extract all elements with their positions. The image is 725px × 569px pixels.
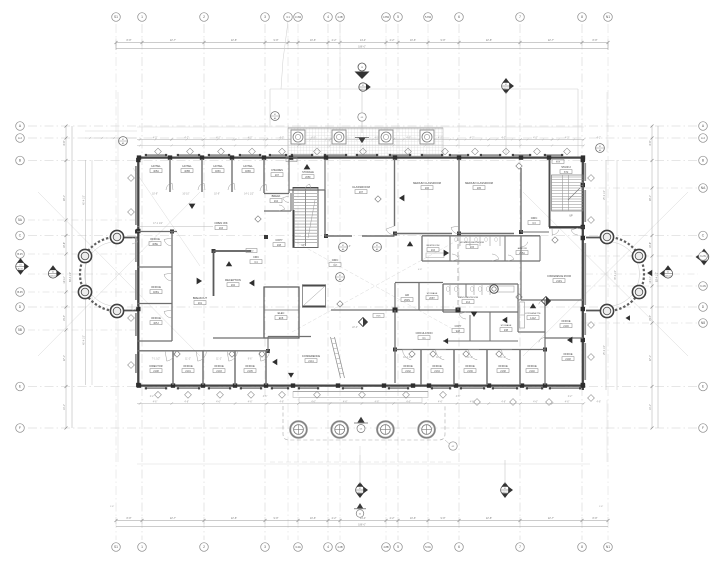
- svg-text:2146: 2146: [563, 325, 569, 328]
- svg-text:2105: 2105: [247, 370, 253, 373]
- svg-text:80'-4 1/2": 80'-4 1/2": [69, 272, 72, 282]
- svg-text:22'-7": 22'-7": [170, 39, 176, 42]
- svg-text:15'-4": 15'-4": [63, 315, 66, 321]
- svg-text:405E: 405E: [152, 243, 158, 246]
- svg-text:215: 215: [470, 246, 475, 249]
- svg-text:A8: A8: [376, 248, 378, 251]
- svg-text:7: 7: [519, 545, 521, 549]
- svg-text:S1: S1: [114, 545, 118, 549]
- svg-text:8'-8": 8'-8": [127, 39, 132, 42]
- svg-text:206T: 206T: [429, 297, 435, 300]
- svg-text:201: 201: [198, 302, 203, 305]
- svg-text:9'-8": 9'-8": [441, 39, 446, 42]
- svg-text:11'-2": 11'-2": [185, 358, 191, 360]
- svg-text:4.2B: 4.2B: [337, 15, 343, 19]
- svg-text:HOTEL: HOTEL: [213, 164, 223, 168]
- svg-text:11'-2": 11'-2": [467, 357, 473, 359]
- svg-text:4'-2": 4'-2": [390, 39, 395, 42]
- svg-text:2'-2": 2'-2": [568, 396, 573, 398]
- svg-text:5: 5: [397, 545, 399, 549]
- svg-text:6.4N: 6.4N: [700, 284, 706, 288]
- svg-text:2148: 2148: [565, 358, 571, 361]
- svg-text:OFFICE: OFFICE: [561, 320, 570, 323]
- svg-text:6'-8": 6'-8": [298, 144, 303, 146]
- svg-text:25'-2 1/2": 25'-2 1/2": [604, 345, 606, 355]
- svg-text:4'-2": 4'-2": [565, 138, 570, 140]
- svg-text:F: F: [19, 426, 21, 430]
- svg-text:4'-2": 4'-2": [533, 138, 538, 140]
- svg-text:14'-1 1/2": 14'-1 1/2": [244, 194, 254, 196]
- svg-text:4'-6": 4'-6": [438, 402, 443, 404]
- svg-text:15'-4": 15'-4": [649, 315, 652, 321]
- svg-text:3.1: 3.1: [286, 15, 290, 19]
- svg-text:A8: A8: [122, 142, 124, 145]
- svg-text:2132: 2132: [405, 370, 411, 373]
- svg-text:5: 5: [397, 15, 399, 19]
- svg-text:CONFERENCE: CONFERENCE: [302, 354, 320, 358]
- svg-text:8'-8": 8'-8": [593, 39, 598, 42]
- svg-text:2103: 2103: [216, 370, 222, 373]
- svg-text:4'-2": 4'-2": [597, 138, 602, 140]
- svg-text:4'-6": 4'-6": [248, 402, 253, 404]
- svg-text:A4.01: A4.01: [18, 267, 24, 270]
- svg-text:RESTROOM: RESTROOM: [427, 245, 440, 247]
- svg-text:A.2: A.2: [701, 136, 705, 140]
- svg-text:10'-6": 10'-6": [310, 517, 316, 520]
- svg-text:13'-11": 13'-11": [63, 276, 66, 283]
- svg-text:1'-8": 1'-8": [110, 506, 115, 508]
- svg-text:01: 01: [122, 139, 124, 141]
- svg-text:9'-6": 9'-6": [248, 358, 253, 360]
- svg-text:WOMEN'S RESTROOM: WOMEN'S RESTROOM: [460, 242, 484, 244]
- svg-text:215A: 215A: [519, 252, 525, 255]
- svg-text:205F: 205F: [305, 176, 311, 179]
- svg-text:2: 2: [203, 15, 205, 19]
- svg-text:3: 3: [264, 545, 266, 549]
- svg-text:COPY: COPY: [455, 325, 462, 328]
- svg-text:405G: 405G: [153, 291, 159, 294]
- svg-text:OFFICE: OFFICE: [151, 285, 161, 289]
- svg-text:4'-6": 4'-6": [153, 402, 158, 404]
- svg-text:22'-7": 22'-7": [548, 517, 554, 520]
- svg-text:A4.01: A4.01: [50, 274, 56, 277]
- svg-text:22'-8": 22'-8": [231, 517, 237, 520]
- svg-text:4'-2": 4'-2": [390, 517, 395, 520]
- svg-text:UP: UP: [301, 244, 305, 247]
- svg-text:10'-9": 10'-9": [152, 194, 158, 196]
- svg-text:8: 8: [581, 545, 583, 549]
- svg-text:203: 203: [219, 227, 224, 230]
- svg-text:260N: 260N: [404, 299, 410, 302]
- svg-text:BREAK: BREAK: [272, 194, 281, 198]
- svg-text:KITCHENETTE: KITCHENETTE: [525, 313, 541, 315]
- svg-text:01: 01: [274, 114, 276, 116]
- svg-text:2140: 2140: [529, 370, 535, 373]
- svg-text:N8: N8: [701, 321, 705, 325]
- svg-text:14'-1": 14'-1": [649, 404, 652, 410]
- svg-text:4'-2": 4'-2": [332, 39, 337, 42]
- svg-text:10'-9": 10'-9": [214, 194, 220, 196]
- svg-text:1'-8": 1'-8": [599, 506, 604, 508]
- svg-text:25'-2 1/2": 25'-2 1/2": [604, 190, 606, 200]
- svg-text:4'-6": 4'-6": [280, 402, 285, 404]
- svg-text:4: 4: [327, 545, 329, 549]
- svg-text:29'-1": 29'-1": [63, 195, 66, 201]
- svg-text:COPY: COPY: [275, 238, 283, 242]
- svg-text:OFFICE: OFFICE: [465, 364, 475, 368]
- svg-text:JANITOR: JANITOR: [517, 247, 527, 250]
- svg-text:6: 6: [458, 15, 460, 19]
- svg-text:CIRC: CIRC: [253, 256, 259, 259]
- svg-text:10'-6": 10'-6": [310, 39, 316, 42]
- svg-text:5.6G: 5.6G: [425, 545, 431, 549]
- svg-text:B.45: B.45: [17, 290, 23, 294]
- svg-text:7'-1 1/2": 7'-1 1/2": [152, 358, 161, 360]
- svg-text:4'-2": 4'-2": [153, 138, 158, 140]
- svg-text:80'-4 1/2": 80'-4 1/2": [656, 272, 659, 282]
- svg-text:206: 206: [425, 187, 430, 190]
- svg-text:214: 214: [466, 301, 471, 304]
- svg-text:205: 205: [477, 187, 482, 190]
- svg-text:207: 207: [359, 191, 364, 194]
- svg-text:A8: A8: [342, 248, 344, 251]
- svg-text:MEDIUM CLASSROOM: MEDIUM CLASSROOM: [465, 181, 493, 185]
- svg-text:OFFICE: OFFICE: [498, 364, 508, 368]
- svg-text:NA: NA: [701, 186, 706, 190]
- svg-text:8'-8": 8'-8": [649, 140, 652, 145]
- svg-text:OFFICE: OFFICE: [403, 364, 413, 368]
- svg-text:14'-4": 14'-4": [360, 517, 366, 520]
- svg-text:8'-8": 8'-8": [593, 517, 598, 520]
- svg-text:10'-4 1/2": 10'-4 1/2": [403, 357, 413, 359]
- svg-text:40'-4 1/2": 40'-4 1/2": [84, 195, 86, 205]
- svg-text:BREAKOUT: BREAKOUT: [193, 296, 208, 300]
- svg-text:4'-6": 4'-6": [263, 396, 268, 398]
- svg-text:MEDIUM CLASSROOM: MEDIUM CLASSROOM: [413, 181, 441, 185]
- svg-text:E08: E08: [279, 317, 284, 320]
- svg-text:4.2B: 4.2B: [337, 545, 343, 549]
- svg-text:11'-2": 11'-2": [500, 357, 506, 359]
- svg-text:2: 2: [203, 545, 205, 549]
- svg-text:4'-2": 4'-2": [470, 138, 475, 140]
- svg-text:27'-1": 27'-1": [63, 355, 66, 361]
- svg-text:202: 202: [231, 284, 236, 287]
- svg-text:ELEC: ELEC: [278, 311, 285, 315]
- svg-text:8'-8": 8'-8": [63, 140, 66, 145]
- svg-text:17'-1 1/2": 17'-1 1/2": [153, 223, 163, 225]
- svg-text:A8: A8: [274, 117, 276, 120]
- svg-text:2108: 2108: [153, 370, 159, 373]
- svg-text:19'-8": 19'-8": [649, 242, 652, 248]
- svg-text:5.6W: 5.6W: [425, 15, 432, 19]
- svg-text:A8: A8: [599, 149, 601, 152]
- svg-text:9'-8": 9'-8": [274, 517, 279, 520]
- svg-text:DIRECTOR: DIRECTOR: [149, 365, 162, 368]
- svg-text:01: 01: [339, 275, 341, 277]
- svg-text:11'-2": 11'-2": [436, 357, 442, 359]
- svg-text:OFFICE: OFFICE: [432, 364, 442, 368]
- svg-text:HOTEL: HOTEL: [243, 164, 253, 168]
- svg-text:216: 216: [431, 249, 436, 252]
- svg-text:22'-0": 22'-0": [352, 327, 358, 329]
- svg-text:22'-8": 22'-8": [231, 39, 237, 42]
- svg-text:4'-6": 4'-6": [456, 396, 461, 398]
- svg-text:01: 01: [342, 245, 344, 247]
- svg-text:6.2N: 6.2N: [700, 254, 706, 258]
- svg-text:40'-4 1/2": 40'-4 1/2": [84, 335, 86, 345]
- svg-text:UP: UP: [569, 215, 573, 218]
- svg-text:OFFICE: OFFICE: [527, 364, 537, 368]
- svg-text:10'-6": 10'-6": [410, 517, 416, 520]
- svg-text:OFFICE: OFFICE: [151, 316, 161, 320]
- svg-text:2138: 2138: [500, 370, 506, 373]
- svg-text:OFFICE: OFFICE: [150, 237, 160, 241]
- svg-text:A8: A8: [339, 278, 341, 281]
- svg-text:ST2: ST2: [564, 171, 569, 174]
- svg-text:STORAGE: STORAGE: [427, 292, 438, 295]
- svg-text:2136: 2136: [467, 370, 473, 373]
- svg-text:CIRC: CIRC: [531, 216, 538, 220]
- svg-text:N1: N1: [606, 15, 610, 19]
- svg-text:141Z: 141Z: [530, 317, 536, 320]
- svg-text:CIRC: CIRC: [332, 258, 339, 262]
- svg-text:4'-6": 4'-6": [184, 402, 189, 404]
- svg-text:9'-8": 9'-8": [441, 517, 446, 520]
- svg-text:14'-1": 14'-1": [63, 404, 66, 410]
- svg-text:208: 208: [277, 244, 282, 247]
- svg-text:10'-6": 10'-6": [410, 39, 416, 42]
- svg-text:204: 204: [274, 200, 279, 203]
- svg-text:405B: 405B: [184, 170, 190, 173]
- svg-text:214S: 214S: [556, 280, 562, 283]
- svg-text:2134: 2134: [434, 370, 440, 373]
- svg-text:2141: 2141: [308, 360, 314, 363]
- svg-text:22'-8": 22'-8": [486, 39, 492, 42]
- svg-text:248: 248: [456, 330, 461, 333]
- svg-text:4'-2": 4'-2": [332, 517, 337, 520]
- svg-text:7: 7: [519, 15, 521, 19]
- svg-text:1: 1: [141, 545, 143, 549]
- svg-text:19'-8": 19'-8": [63, 242, 66, 248]
- svg-text:B.25: B.25: [17, 252, 23, 256]
- svg-text:9'-8": 9'-8": [274, 39, 279, 42]
- svg-text:OFFICE: OFFICE: [214, 364, 224, 368]
- svg-text:405C: 405C: [215, 170, 221, 173]
- svg-text:OFFICE: OFFICE: [245, 364, 255, 368]
- svg-text:N1: N1: [606, 545, 610, 549]
- svg-text:4'-6": 4'-6": [533, 402, 538, 404]
- svg-text:STORAGE: STORAGE: [302, 171, 314, 174]
- svg-text:29'-1": 29'-1": [649, 195, 652, 201]
- svg-text:22'-8": 22'-8": [486, 517, 492, 520]
- svg-text:01: 01: [376, 245, 378, 247]
- svg-text:207: 207: [275, 174, 280, 177]
- svg-text:CHILDREN: CHILDREN: [271, 170, 283, 172]
- svg-text:3.4G: 3.4G: [295, 545, 301, 549]
- svg-text:2'-2": 2'-2": [150, 396, 155, 398]
- svg-text:4'-6": 4'-6": [216, 402, 221, 404]
- svg-text:CONFERENCE ROOM: CONFERENCE ROOM: [547, 276, 571, 278]
- svg-text:14'-4": 14'-4": [360, 39, 366, 42]
- svg-text:3.4W: 3.4W: [295, 15, 302, 19]
- svg-text:CLASSROOM: CLASSROOM: [352, 185, 371, 189]
- svg-text:A4.01: A4.01: [665, 274, 671, 277]
- svg-text:AIR: AIR: [405, 294, 409, 297]
- svg-text:22'-7": 22'-7": [548, 39, 554, 42]
- svg-text:8: 8: [581, 15, 583, 19]
- svg-text:CIRCULATION: CIRCULATION: [416, 332, 433, 335]
- svg-text:8'-8": 8'-8": [127, 517, 132, 520]
- svg-text:STAIR 2: STAIR 2: [561, 165, 571, 169]
- svg-text:186'-0": 186'-0": [358, 523, 366, 526]
- svg-text:11'-2": 11'-2": [216, 358, 222, 360]
- svg-text:HOTEL: HOTEL: [151, 164, 161, 168]
- svg-text:HOTEL: HOTEL: [182, 164, 192, 168]
- svg-text:238: 238: [504, 329, 509, 332]
- svg-text:STORAGE: STORAGE: [501, 324, 512, 327]
- svg-text:22'-7": 22'-7": [170, 517, 176, 520]
- svg-text:405D: 405D: [245, 170, 251, 173]
- svg-text:27'-1": 27'-1": [649, 355, 652, 361]
- svg-text:10'-10": 10'-10": [182, 194, 189, 196]
- svg-text:4'-6": 4'-6": [565, 402, 570, 404]
- svg-text:2101: 2101: [185, 370, 191, 373]
- svg-text:01: 01: [599, 146, 601, 148]
- svg-text:OPEN WK: OPEN WK: [214, 221, 227, 225]
- svg-text:4: 4: [327, 15, 329, 19]
- svg-text:4'-2": 4'-2": [501, 138, 506, 140]
- svg-text:OFFICE: OFFICE: [183, 364, 193, 368]
- svg-text:4'-9": 4'-9": [418, 269, 423, 271]
- svg-text:13'-11": 13'-11": [649, 276, 652, 283]
- svg-text:6: 6: [458, 545, 460, 549]
- svg-text:1: 1: [141, 15, 143, 19]
- svg-text:38'-2 1/2": 38'-2 1/2": [615, 270, 617, 280]
- svg-text:405J: 405J: [153, 322, 159, 325]
- svg-text:S1: S1: [114, 15, 118, 19]
- svg-text:4'-6": 4'-6": [501, 402, 506, 404]
- svg-text:4'-6": 4'-6": [597, 402, 602, 404]
- svg-text:3: 3: [264, 15, 266, 19]
- svg-text:A4.01: A4.01: [360, 88, 366, 91]
- svg-text:F: F: [702, 426, 704, 430]
- svg-text:4.8B: 4.8B: [383, 545, 389, 549]
- svg-text:405A: 405A: [153, 170, 159, 173]
- svg-text:4.8W: 4.8W: [383, 15, 390, 19]
- svg-text:RECEPTION: RECEPTION: [225, 278, 241, 282]
- svg-text:186'-0": 186'-0": [358, 45, 366, 48]
- svg-text:MEN'S RESTROOM: MEN'S RESTROOM: [458, 297, 478, 299]
- svg-text:A.2: A.2: [18, 136, 22, 140]
- svg-text:OFFICE: OFFICE: [563, 353, 572, 356]
